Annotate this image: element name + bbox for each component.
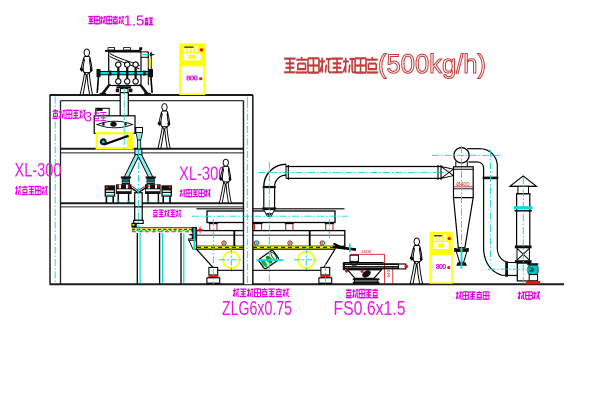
svg-text:Ø400: Ø400 xyxy=(456,182,469,188)
svg-text:1500: 1500 xyxy=(361,249,372,254)
svg-text:540: 540 xyxy=(386,269,391,277)
svg-text:XL-300: XL-300 xyxy=(15,161,62,182)
svg-text:3: 3 xyxy=(85,110,93,125)
svg-text:1.5: 1.5 xyxy=(124,13,145,30)
svg-text:XL-300: XL-300 xyxy=(179,164,227,185)
svg-text:(500kg/h): (500kg/h) xyxy=(378,49,486,79)
svg-text:FS0.6x1.5: FS0.6x1.5 xyxy=(334,298,406,320)
svg-text:ZLG6x0.75: ZLG6x0.75 xyxy=(222,298,292,320)
